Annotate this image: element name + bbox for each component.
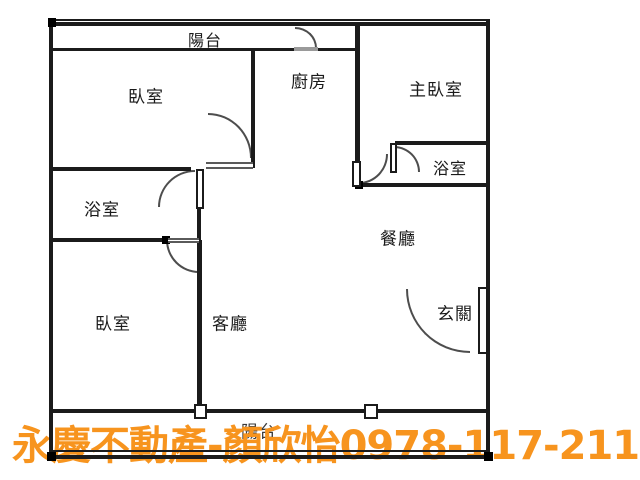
- bedroom2-door-threshold: [168, 238, 199, 243]
- room-label-bathroom-left: 浴室: [84, 196, 120, 221]
- wall-top: [49, 22, 490, 26]
- corner-cap-top-left: [48, 18, 56, 27]
- wall-balcony-top-right: [318, 48, 358, 51]
- room-label-bedroom-top-left: 臥室: [128, 83, 164, 108]
- entry-door-leaf: [478, 287, 488, 354]
- window-marker-right: [364, 404, 378, 419]
- balcony-door-arc: [295, 27, 317, 48]
- balcony-door-threshold: [294, 47, 318, 51]
- wall-right: [486, 19, 490, 459]
- bathroom-left-door-leaf: [196, 169, 204, 209]
- wall-bathroom-left-bottom: [49, 238, 168, 242]
- room-label-kitchen: 廚房: [291, 68, 327, 93]
- entry-door-arc: [406, 289, 470, 353]
- wall-bottom: [49, 455, 490, 459]
- window-marker-left: [194, 404, 207, 419]
- floor-plan: 陽台 臥室 廚房 主臥室 浴室 浴室 餐廳 臥室 客廳 玄關 陽台 永慶不動產-…: [0, 0, 640, 480]
- wall-kitchen-left: [251, 50, 255, 168]
- realtor-watermark: 永慶不動產-顏欣怡0978-117-211: [12, 424, 639, 468]
- bedroom2-door-arc: [166, 240, 199, 273]
- wall-bedroom2-right: [197, 240, 202, 412]
- room-label-dining: 餐廳: [380, 225, 416, 250]
- wall-bathroom-left-right: [197, 206, 201, 242]
- wall-bathroom-master-top: [395, 141, 490, 145]
- bathroom-master-door-arc: [394, 146, 420, 172]
- bedroom1-door-threshold: [206, 162, 253, 169]
- wall-kitchen-right: [355, 22, 360, 163]
- kitchen-door-leaf: [352, 161, 361, 187]
- wall-bottom-inner: [51, 450, 488, 452]
- wall-bedroom1-bottom: [49, 167, 191, 171]
- room-label-living: 客廳: [212, 310, 248, 335]
- wall-living-bottom: [49, 409, 490, 413]
- wall-balcony-top-left: [51, 48, 294, 51]
- room-label-master-bedroom: 主臥室: [409, 76, 463, 101]
- room-label-bathroom-master: 浴室: [433, 155, 467, 179]
- room-label-bedroom-bottom-left: 臥室: [95, 310, 131, 335]
- wall-bathroom-master-bottom: [355, 183, 490, 187]
- bathroom-master-door-leaf: [390, 143, 397, 173]
- bathroom-left-door-arc: [158, 170, 195, 207]
- kitchen-door-arc: [359, 154, 388, 184]
- wall-top-outer: [49, 19, 490, 21]
- corner-cap-bottom-left: [47, 452, 56, 461]
- corner-cap-bottom-right: [484, 452, 493, 461]
- bedroom1-door-arc: [208, 113, 252, 158]
